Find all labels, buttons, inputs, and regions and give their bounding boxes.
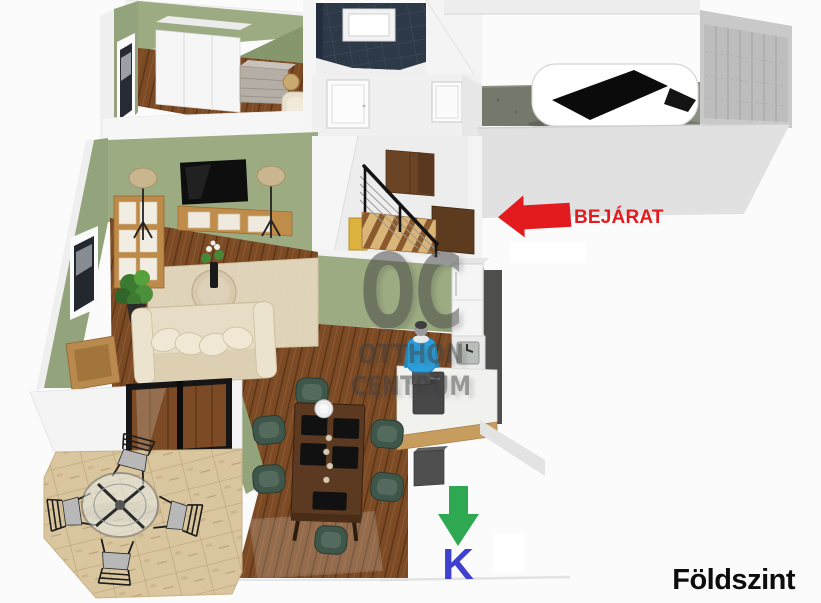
watermark-logo: OC [360, 233, 462, 352]
bedside-table [283, 74, 299, 90]
white-patch-1 [510, 242, 586, 263]
garage-shelves [704, 24, 788, 122]
bathroom-window [343, 9, 395, 41]
dining-chair [314, 525, 348, 555]
watermark-line1: OTTHON [358, 339, 464, 370]
sofa [131, 301, 277, 384]
floor-plan-image: OC OTTHON CENTRUM BEJÁRAT K Földszint [0, 0, 821, 603]
dining-chair [369, 471, 404, 503]
side-desk [66, 336, 120, 390]
floor-title: Földszint [672, 564, 796, 596]
watermark: OC OTTHON CENTRUM [351, 233, 471, 402]
hallway [312, 74, 482, 136]
watermark-line2: CENTRUM [351, 371, 471, 402]
compass-label: K [442, 540, 474, 589]
sliding-door [126, 378, 232, 458]
bar-stool [414, 446, 448, 486]
bedroom-window [117, 33, 135, 127]
garage-front-wall [478, 124, 790, 218]
dining-chair [370, 419, 404, 450]
white-patch-2 [494, 534, 524, 572]
floor-plan-svg: OC OTTHON CENTRUM BEJÁRAT K Földszint [0, 0, 821, 603]
dining-chair [252, 464, 286, 494]
hall-wardrobe [386, 150, 434, 196]
entrance-label: BEJÁRAT [574, 206, 664, 228]
living-window [70, 226, 98, 320]
hall-door-2 [432, 82, 462, 122]
car [528, 64, 700, 131]
tv [180, 159, 248, 204]
hall-door-1 [327, 80, 369, 128]
dining-chair [252, 414, 287, 445]
